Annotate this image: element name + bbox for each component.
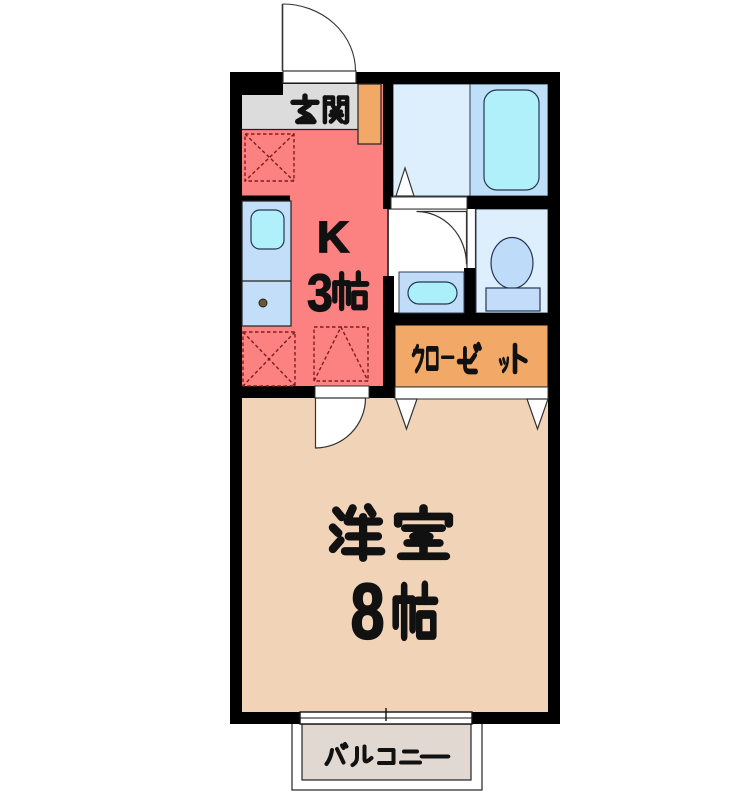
svg-text:8: 8 <box>351 568 385 655</box>
svg-text:3: 3 <box>307 263 333 322</box>
svg-text:K: K <box>317 213 349 262</box>
